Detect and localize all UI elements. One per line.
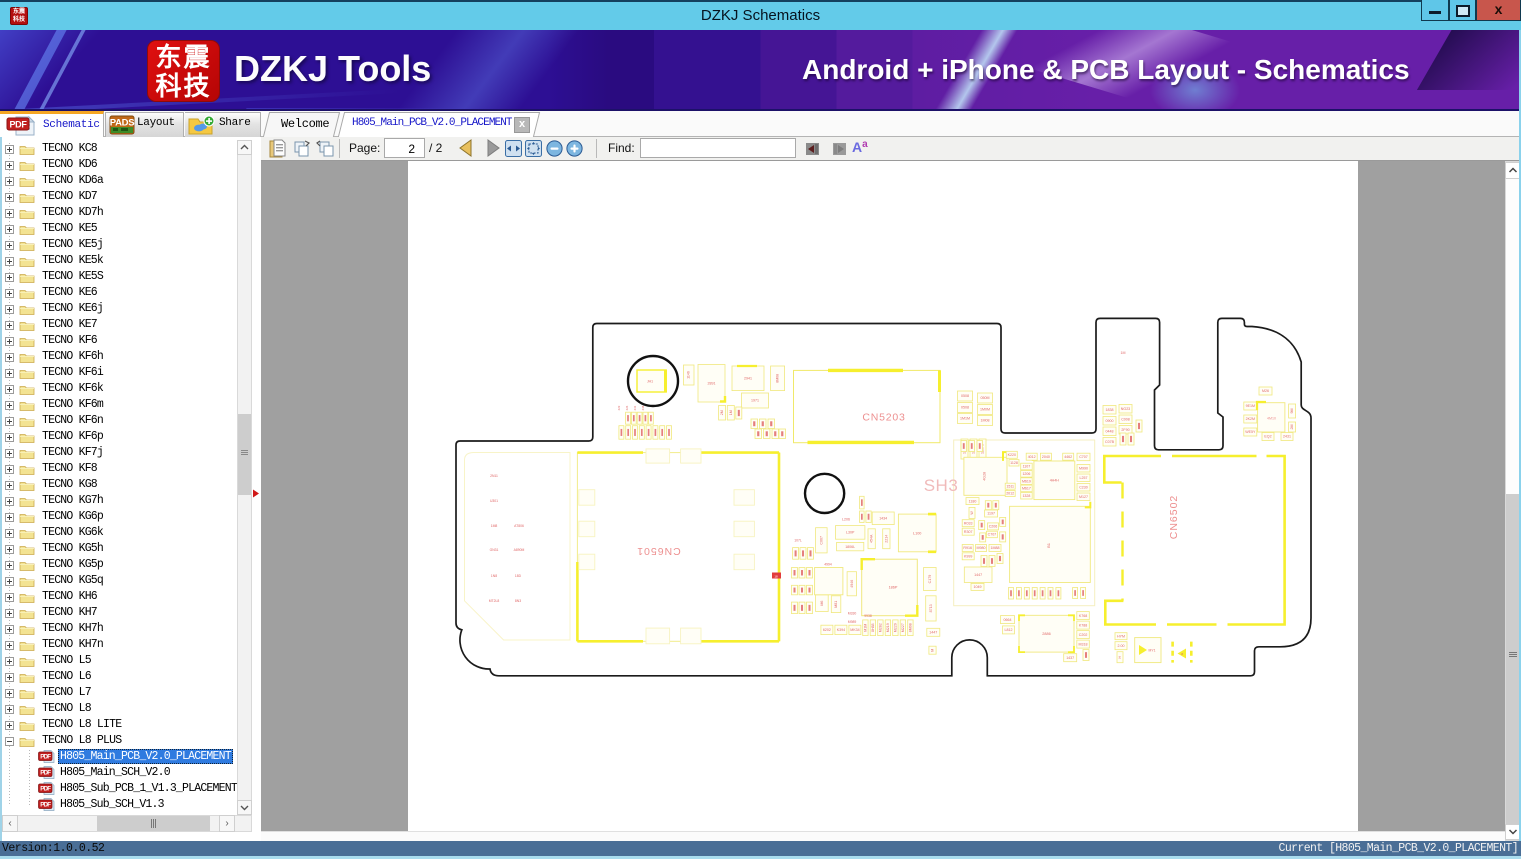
svg-text:W: W [970,511,974,515]
svg-text:L30P: L30P [846,531,855,535]
svg-text:M127: M127 [1079,495,1088,499]
svg-text:231: 231 [633,405,637,410]
svg-text:JH1: JH1 [647,380,653,384]
svg-text:C230: C230 [1079,485,1088,489]
svg-text:050M: 050M [981,396,990,400]
svg-text:18D: 18D [515,574,522,578]
svg-text:C707: C707 [988,533,997,537]
svg-text:1971: 1971 [751,399,759,403]
svg-text:C206: C206 [989,525,998,529]
svg-text:C707: C707 [1079,455,1088,459]
svg-text:M81: M81 [834,601,838,608]
svg-text:PDF: PDF [40,770,51,777]
svg-text:AT806: AT806 [514,524,524,528]
svg-text:18: 18 [774,575,778,579]
svg-text:4462: 4462 [1064,455,1072,459]
svg-text:1437: 1437 [1066,656,1074,660]
svg-text:0508: 0508 [961,394,969,398]
svg-text:2941: 2941 [744,377,752,381]
svg-text:0448: 0448 [1106,429,1114,433]
svg-text:C008: C008 [1121,417,1130,421]
svg-text:4H4H: 4H4H [1050,479,1060,483]
svg-text:M619: M619 [1022,479,1031,483]
svg-text:K788: K788 [1079,623,1087,627]
svg-text:1206: 1206 [1022,472,1030,476]
svg-text:2K2M: 2K2M [1246,417,1255,421]
svg-text:8M08: 8M08 [776,374,780,383]
svg-text:R033: R033 [964,521,973,525]
svg-text:NG23: NG23 [1121,407,1130,411]
svg-text:2886: 2886 [1042,632,1050,636]
svg-text:B1: B1 [1046,542,1051,548]
svg-text:1M: 1M [1121,351,1126,355]
svg-text:CN6502: CN6502 [1168,495,1180,540]
svg-text:2431: 2431 [1283,435,1291,439]
svg-text:4994: 4994 [824,563,832,567]
svg-text:M990: M990 [1079,466,1088,470]
svg-text:8H88: 8H88 [871,623,875,632]
svg-text:M6: M6 [820,601,824,606]
svg-text:M229: M229 [893,623,897,632]
svg-text:2214: 2214 [884,535,888,543]
svg-text:1197: 1197 [987,512,995,516]
svg-text:M980: M980 [977,546,986,550]
svg-text:8N3: 8N3 [515,599,521,603]
svg-text:L206: L206 [842,518,850,522]
svg-text:1049: 1049 [974,585,982,589]
svg-text:C179: C179 [928,575,932,584]
svg-text:K220: K220 [1008,453,1016,457]
svg-text:CN6501: CN6501 [636,545,681,557]
svg-text:2M: 2M [1290,425,1294,430]
svg-text:K999: K999 [964,555,972,559]
svg-text:1146: 1146 [687,371,691,379]
svg-text:0900: 0900 [1106,419,1114,423]
svg-text:1434: 1434 [879,517,887,521]
svg-text:1128: 1128 [1010,461,1018,465]
svg-text:186P: 186P [889,586,898,590]
svg-text:1511: 1511 [1006,484,1014,488]
svg-text:C202: C202 [1079,633,1088,637]
svg-text:8M08: 8M08 [908,623,912,632]
svg-text:L812: L812 [1005,628,1013,632]
svg-text:L257: L257 [1080,476,1088,480]
svg-text:M282: M282 [878,623,882,632]
svg-text:2F90: 2F90 [1121,428,1129,432]
svg-text:0664: 0664 [1004,618,1012,622]
svg-text:K394: K394 [837,628,845,632]
svg-text:1M: 1M [729,410,733,415]
svg-text:1M88: 1M88 [991,546,1000,550]
svg-text:223: 223 [617,405,621,410]
svg-text:C07B: C07B [1105,440,1115,444]
svg-text:A890M: A890M [514,548,525,552]
svg-text:2.00: 2.00 [1118,644,1125,648]
svg-text:1180: 1180 [969,499,977,503]
svg-text:6202: 6202 [823,628,831,632]
svg-text:1N8: 1N8 [491,574,497,578]
svg-text:9938: 9938 [864,614,872,618]
svg-text:MT2L8: MT2L8 [489,599,500,603]
svg-text:PDF: PDF [9,120,27,130]
svg-text:1M08: 1M08 [981,419,990,423]
svg-text:EQ2: EQ2 [1264,435,1271,439]
svg-text:L100: L100 [913,532,921,536]
svg-text:1838: 1838 [1106,408,1114,412]
svg-text:4M10: 4M10 [1267,417,1276,421]
svg-text:MY1: MY1 [1149,649,1156,653]
svg-text:107L: 107L [794,539,802,543]
svg-text:H: H [1118,656,1122,659]
svg-text:2M: 2M [720,410,724,415]
svg-text:C067: C067 [819,536,823,545]
svg-text:K768: K768 [1079,614,1087,618]
svg-text:1M1M: 1M1M [960,417,970,421]
svg-text:PDF: PDF [40,802,51,809]
svg-text:HYM: HYM [1117,634,1125,638]
svg-text:8713: 8713 [929,604,933,612]
svg-text:2040: 2040 [1042,455,1050,459]
svg-text:M26: M26 [1262,389,1269,393]
svg-text:9E1M: 9E1M [1246,404,1255,408]
svg-text:PDF: PDF [40,786,51,793]
svg-text:M1M: M1M [863,624,867,632]
svg-text:1447: 1447 [929,631,937,635]
svg-text:U301: U301 [490,499,498,503]
svg-text:SH3: SH3 [924,476,959,495]
svg-text:0508: 0508 [961,406,969,410]
svg-text:M330: M330 [848,612,857,616]
svg-text:MK34: MK34 [850,628,859,632]
svg-text:454A: 454A [870,534,874,543]
svg-text:M: M [930,649,934,652]
svg-text:4946: 4946 [850,580,854,588]
svg-text:226: 226 [625,405,629,410]
svg-text:4G28: 4G28 [982,472,986,481]
svg-text:238: 238 [641,405,645,410]
svg-text:1107: 1107 [1023,465,1031,469]
svg-text:2891: 2891 [708,381,716,385]
svg-text:M219: M219 [886,623,890,632]
svg-text:1M0M: 1M0M [980,408,990,412]
svg-text:CN5203: CN5203 [862,412,905,424]
svg-text:4012: 4012 [1028,455,1036,459]
svg-text:PADS: PADS [110,118,135,129]
svg-text:1447: 1447 [974,573,982,577]
svg-text:GN31: GN31 [490,548,499,552]
svg-text:M617: M617 [1022,487,1031,491]
svg-text:2N11: 2N11 [490,474,498,478]
svg-text:M227: M227 [901,623,905,632]
svg-text:2012: 2012 [1006,492,1014,496]
svg-text:WE5Y: WE5Y [1245,430,1256,434]
svg-text:PDF: PDF [40,754,51,761]
svg-text:M989: M989 [848,620,857,624]
svg-text:R307: R307 [964,530,973,534]
svg-text:1806L: 1806L [845,545,855,549]
svg-text:M318: M318 [1079,642,1088,646]
svg-text:9M: 9M [1290,409,1294,414]
svg-text:R916: R916 [963,546,972,550]
svg-text:1328: 1328 [1022,494,1030,498]
svg-text:1M8: 1M8 [491,524,498,528]
